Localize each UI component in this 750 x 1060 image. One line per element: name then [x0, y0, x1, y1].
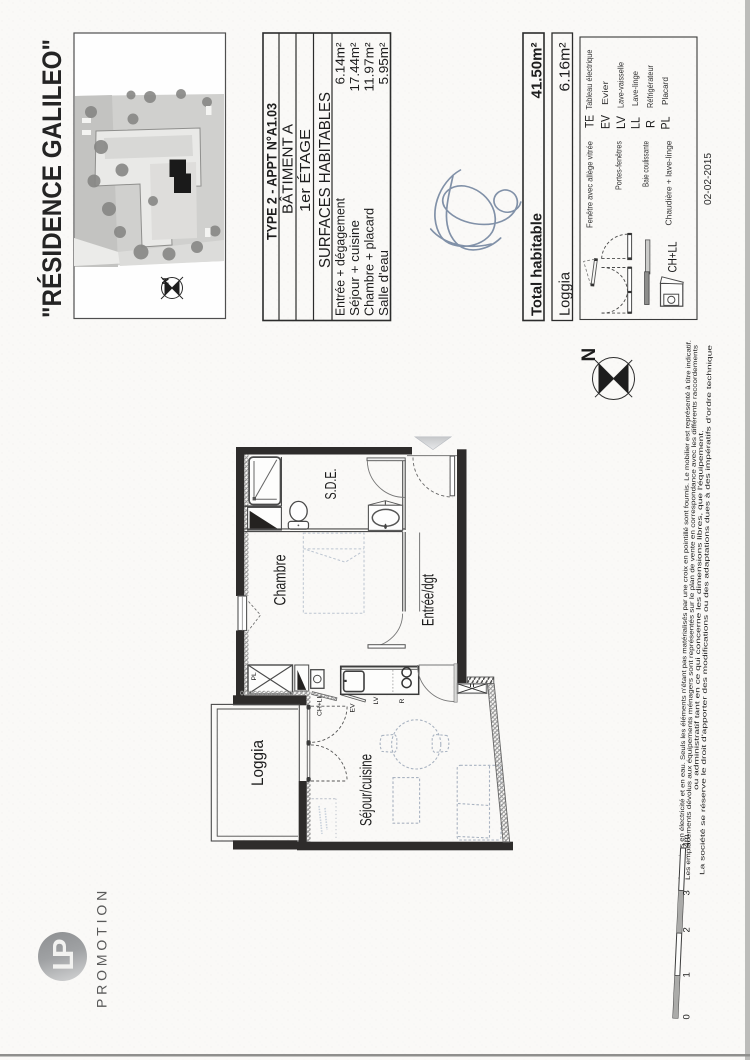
svg-text:0: 0 [681, 1014, 692, 1019]
svg-text:Total habitable: Total habitable [529, 213, 546, 316]
svg-text:BÂTIMENT A: BÂTIMENT A [280, 124, 297, 214]
svg-text:"RÉSIDENCE GALILEO": "RÉSIDENCE GALILEO" [36, 39, 67, 318]
svg-text:02-02-2015: 02-02-2015 [703, 153, 714, 205]
svg-text:Réfrigérateur: Réfrigérateur [646, 65, 655, 108]
svg-text:R: R [399, 699, 406, 704]
svg-text:LV: LV [616, 116, 628, 129]
svg-text:Entrée/dgt: Entrée/dgt [420, 574, 438, 626]
svg-text:Chambre: Chambre [271, 555, 290, 606]
svg-text:PL: PL [661, 116, 673, 130]
svg-text:Séjour + cuisine: Séjour + cuisine [347, 220, 362, 316]
svg-text:LL: LL [631, 116, 643, 129]
svg-text:N: N [161, 278, 172, 285]
svg-text:S.D.E.: S.D.E. [323, 469, 340, 500]
svg-text:5.95m²: 5.95m² [376, 42, 391, 85]
svg-text:Placard: Placard [661, 77, 670, 105]
svg-text:Evier: Evier [601, 81, 610, 105]
svg-text:Baie coulissante: Baie coulissante [642, 141, 651, 187]
svg-text:Lave-vaisselle: Lave-vaisselle [617, 62, 626, 108]
svg-text:3: 3 [681, 890, 692, 895]
svg-text:EV: EV [350, 703, 357, 713]
svg-text:R: R [646, 120, 658, 128]
svg-text:CH+LL: CH+LL [317, 694, 324, 716]
svg-text:Entrée + dégagement: Entrée + dégagement [333, 198, 348, 316]
svg-text:Portes-fenêtres: Portes-fenêtres [615, 141, 624, 190]
svg-text:LV: LV [373, 696, 380, 704]
svg-text:Tableau électrique: Tableau électrique [585, 49, 594, 110]
svg-text:PROMOTION: PROMOTION [94, 888, 110, 1008]
svg-text:LP: LP [48, 939, 80, 971]
svg-text:N: N [579, 348, 600, 362]
svg-text:Loggia: Loggia [248, 740, 267, 786]
svg-text:TYPE 2 - APPT N°A1.03: TYPE 2 - APPT N°A1.03 [264, 103, 280, 240]
svg-text:CH+LL: CH+LL [666, 241, 680, 272]
svg-text:Salle d'eau: Salle d'eau [376, 250, 391, 316]
svg-text:Loggia: Loggia [557, 271, 574, 316]
svg-text:1: 1 [681, 972, 692, 977]
svg-text:17.44m²: 17.44m² [347, 42, 362, 92]
svg-text:4m: 4m [681, 834, 692, 847]
svg-text:Lave-linge: Lave-linge [631, 70, 640, 106]
svg-text:Chaudière + lave-linge: Chaudière + lave-linge [665, 140, 674, 226]
svg-text:EV: EV [601, 115, 613, 129]
svg-text:Chambre + placard: Chambre + placard [362, 208, 377, 316]
svg-text:6.14m²: 6.14m² [333, 42, 348, 85]
svg-text:TE: TE [585, 115, 597, 128]
svg-text:41.50m²: 41.50m² [529, 43, 546, 99]
svg-text:6.16m²: 6.16m² [557, 42, 574, 91]
svg-text:SURFACES HABITABLES: SURFACES HABITABLES [317, 92, 334, 268]
svg-text:PL: PL [251, 672, 258, 681]
svg-text:Fenêtre avec allège vitrée: Fenêtre avec allège vitrée [586, 140, 595, 228]
svg-text:2: 2 [681, 927, 692, 932]
svg-text:Séjour/cuisine: Séjour/cuisine [357, 754, 376, 826]
svg-text:1er ÉTAGE: 1er ÉTAGE [297, 129, 314, 212]
svg-text:11.97m²: 11.97m² [362, 42, 377, 92]
